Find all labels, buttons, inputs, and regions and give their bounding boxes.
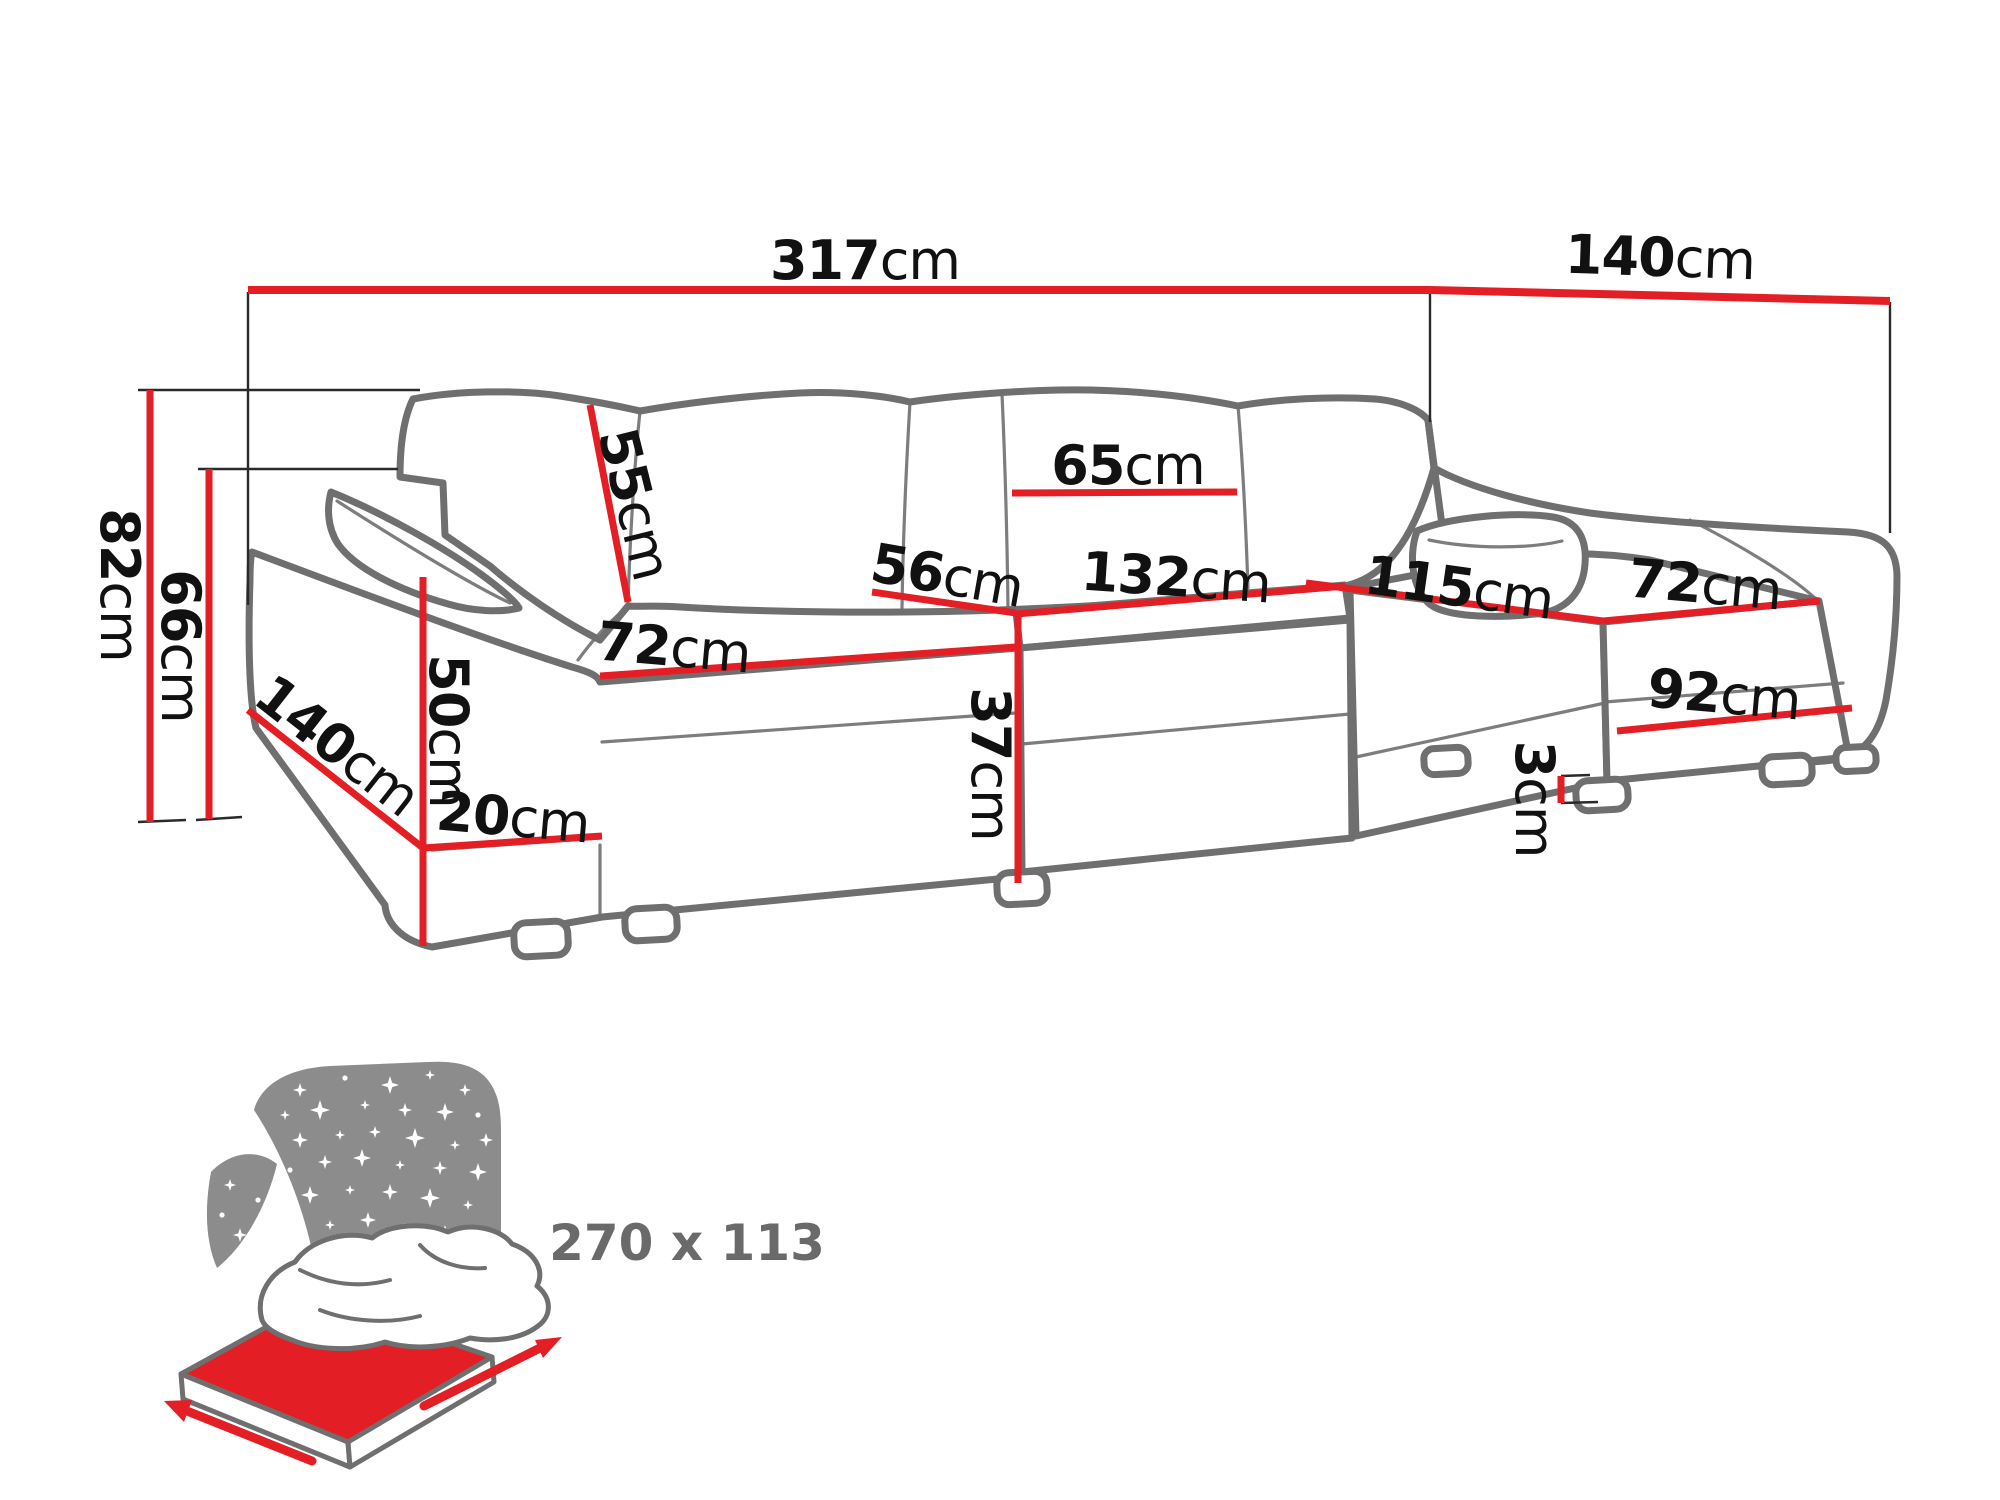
dimension-label-middle-seat-width: 132cm: [1079, 544, 1272, 611]
right-chaise-left-face: [1350, 590, 1607, 836]
bed-icon: [164, 1062, 562, 1467]
dimension-label-back-height: 82cm: [92, 508, 146, 661]
dimension-label-leg-height: 3cm: [1507, 741, 1561, 858]
dimension-label-total-width: 317cm: [770, 234, 960, 288]
sofa-dimension-diagram: 317cm140cm82cm66cm55cm65cm56cm132cm115cm…: [0, 0, 2000, 1500]
star-icon: [475, 1112, 480, 1117]
extension-arm-height-bottom: [196, 817, 242, 820]
star-icon: [219, 1212, 224, 1217]
sofa-leg: [1761, 755, 1812, 786]
dimension-label-right-section-depth: 140cm: [1564, 228, 1756, 289]
sofa-leg: [1835, 746, 1876, 772]
duvet: [260, 1226, 548, 1349]
dimension-label-back-cushion-width: 65cm: [1051, 439, 1204, 493]
dimension-label-seat-height: 37cm: [963, 687, 1017, 840]
dimension-label-right-front-length: 92cm: [1645, 661, 1803, 728]
extension-back-height-bottom: [138, 820, 186, 822]
width-arrow-head: [164, 1400, 192, 1422]
dimension-label-arm-height: 66cm: [153, 569, 207, 722]
dimension-label-base-height: 20cm: [434, 784, 592, 851]
star-icon: [342, 1075, 347, 1080]
extension-leg-height-bottom: [1561, 802, 1598, 803]
star-icon: [287, 1167, 292, 1172]
dimension-label-left-seat-width: 72cm: [595, 614, 753, 681]
middle-front-face: [1020, 620, 1352, 872]
dimension-label-right-seat-width: 72cm: [1626, 551, 1784, 618]
star-icon: [255, 1197, 260, 1202]
sofa-leg: [1423, 747, 1468, 775]
sofa-leg: [996, 871, 1048, 906]
depth-arrow-head: [535, 1337, 562, 1358]
sofa-leg: [513, 921, 569, 958]
sofa-leg: [624, 907, 678, 942]
night-sky-wedge: [207, 1154, 277, 1268]
bed-dimensions-label: 270 x 113: [549, 1214, 825, 1272]
dimension-line-right-section-depth: [1430, 290, 1890, 301]
sofa-leg: [1575, 779, 1628, 812]
